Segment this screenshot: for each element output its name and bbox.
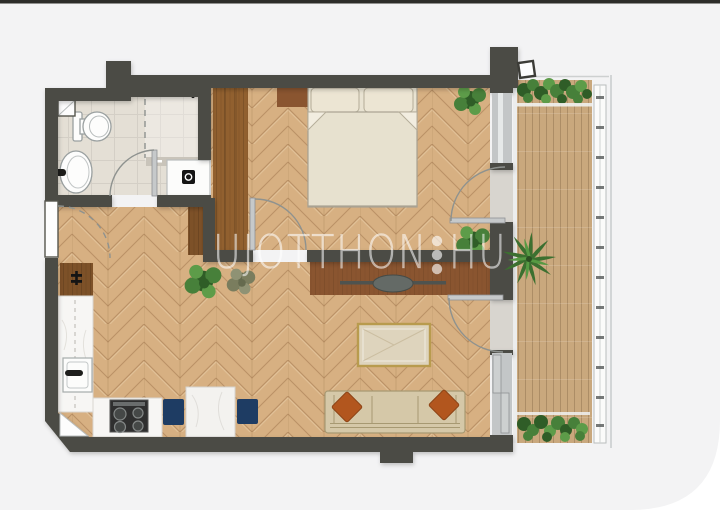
sofa bbox=[325, 389, 465, 433]
floorplan-canvas: UJOTTHON HU bbox=[0, 0, 720, 510]
washing-machine bbox=[167, 160, 210, 196]
double-bed bbox=[308, 85, 417, 207]
kitchen-faucet bbox=[65, 370, 83, 376]
living-terrace-threshold bbox=[490, 298, 513, 353]
watermark-text-right: HU bbox=[449, 225, 507, 279]
terrace-corner-box bbox=[518, 61, 535, 78]
watermark-dot bbox=[432, 264, 442, 274]
cooktop bbox=[110, 400, 148, 433]
bedroom-terrace-threshold bbox=[490, 167, 513, 222]
bed-duvet bbox=[308, 112, 417, 206]
terrace-edge-strip bbox=[513, 80, 517, 443]
washing-machine-icon bbox=[182, 170, 195, 184]
dining-chair-left bbox=[163, 399, 184, 425]
fridge-cabinet bbox=[60, 263, 93, 296]
hallway-floor bbox=[58, 207, 203, 262]
entrance-door-leaf bbox=[45, 201, 58, 257]
dining-chair-right bbox=[237, 399, 258, 424]
floorplan-image: UJOTTHON HU bbox=[0, 0, 720, 510]
top-right-pillar bbox=[490, 47, 518, 88]
toilet bbox=[73, 112, 111, 141]
watermark-dot bbox=[432, 236, 442, 246]
sliding-glass-door bbox=[492, 353, 512, 435]
bottom-step bbox=[380, 452, 413, 463]
coffee-table bbox=[358, 324, 430, 366]
top-edge-line bbox=[0, 0, 720, 4]
watermark-text-left: UJOTTHON bbox=[213, 225, 428, 279]
hallway-closet bbox=[188, 200, 203, 255]
watermark-dot bbox=[432, 250, 442, 260]
dining-table bbox=[186, 387, 235, 437]
bedroom-window bbox=[492, 93, 512, 163]
watermark: UJOTTHON HU bbox=[213, 225, 507, 279]
bed-pillow-left bbox=[311, 88, 359, 112]
top-pillar bbox=[106, 61, 131, 101]
wall-niche bbox=[58, 100, 75, 116]
kitchen-sink bbox=[63, 358, 92, 392]
bed-pillow-right bbox=[364, 88, 413, 112]
